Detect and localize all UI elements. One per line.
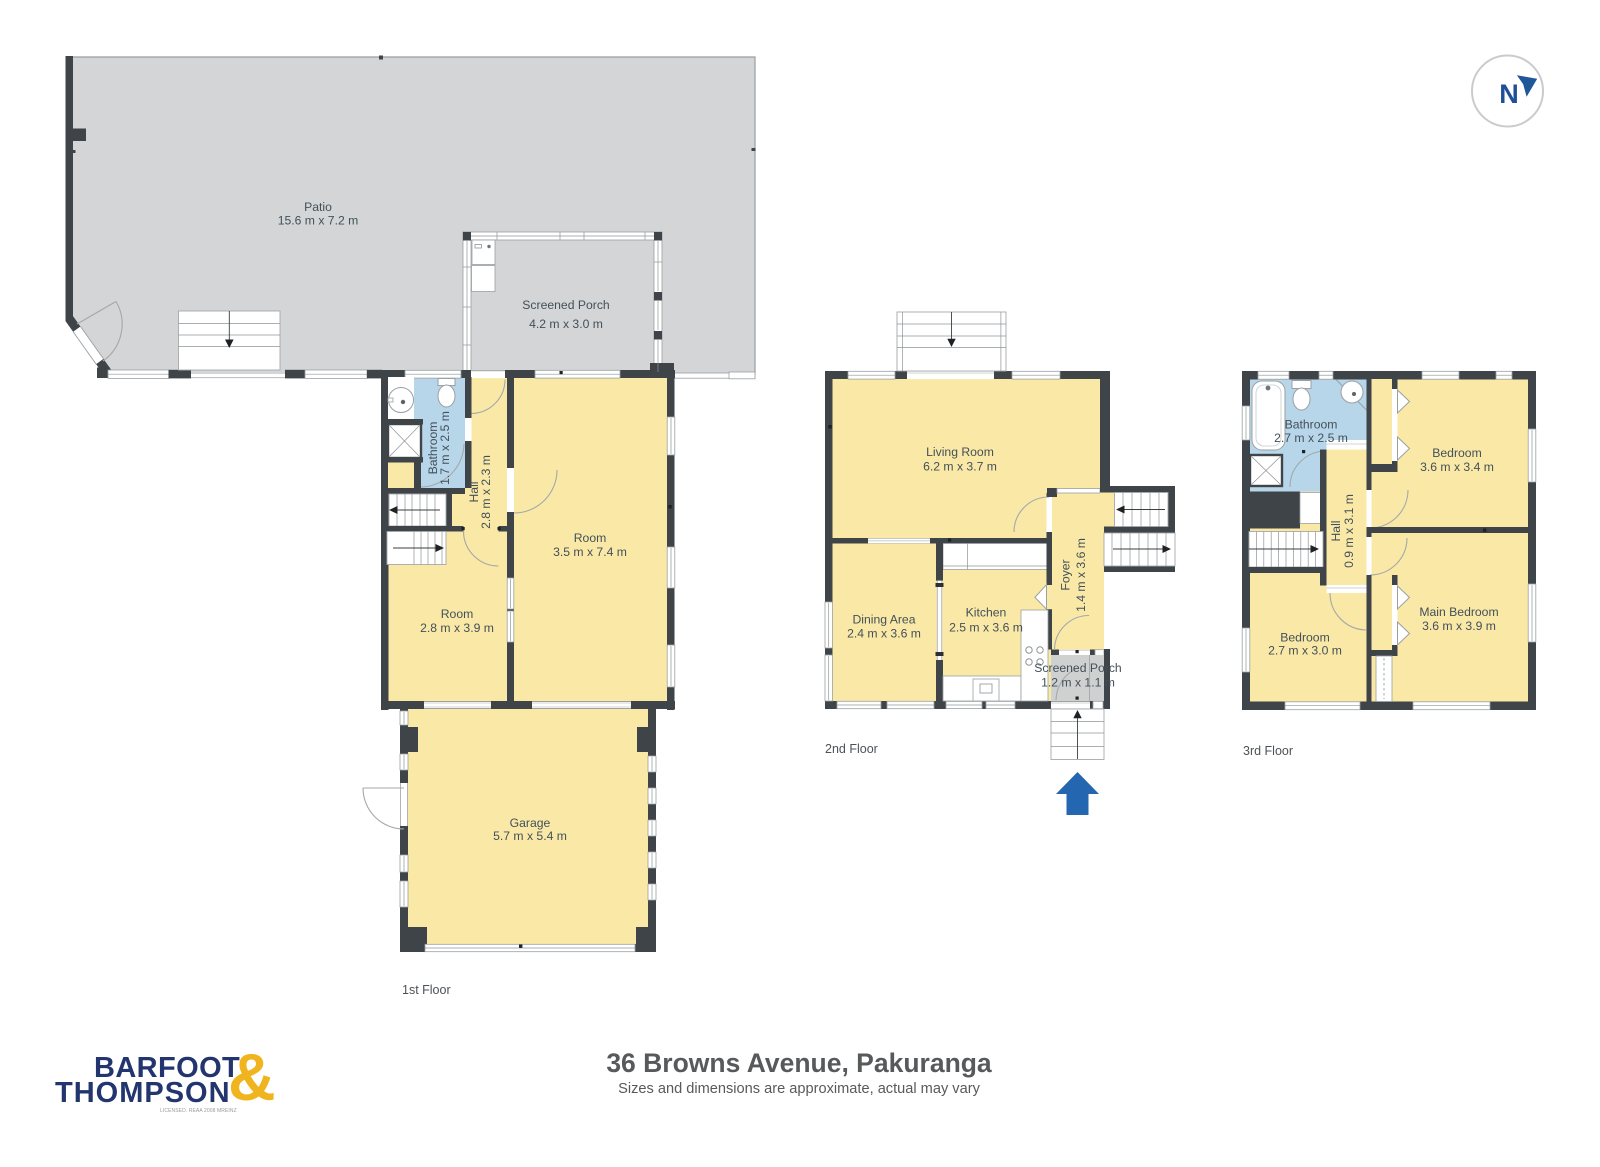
svg-text:Garage: Garage <box>510 816 551 830</box>
svg-text:6.2 m x 3.7 m: 6.2 m x 3.7 m <box>923 460 997 474</box>
svg-text:2.7 m x 3.0 m: 2.7 m x 3.0 m <box>1268 644 1342 658</box>
svg-text:3.6 m x 3.4 m: 3.6 m x 3.4 m <box>1420 460 1494 474</box>
svg-text:Screened Porch: Screened Porch <box>522 298 609 312</box>
svg-text:Dining Area: Dining Area <box>852 613 915 627</box>
svg-text:Kitchen: Kitchen <box>966 606 1007 620</box>
svg-text:1st Floor: 1st Floor <box>402 983 451 997</box>
svg-text:15.6 m x 7.2 m: 15.6 m x 7.2 m <box>278 214 359 228</box>
svg-text:Hall: Hall <box>1329 521 1343 542</box>
svg-text:Room: Room <box>574 531 607 545</box>
svg-text:1.4 m x 3.6 m: 1.4 m x 3.6 m <box>1074 538 1088 612</box>
svg-text:N: N <box>1499 79 1519 109</box>
svg-text:3rd Floor: 3rd Floor <box>1243 744 1293 758</box>
svg-text:&: & <box>228 1040 276 1114</box>
svg-text:2.4 m x 3.6 m: 2.4 m x 3.6 m <box>847 627 921 641</box>
svg-text:Sizes and dimensions are appro: Sizes and dimensions are approximate, ac… <box>618 1081 980 1097</box>
svg-text:0.9 m x 3.1 m: 0.9 m x 3.1 m <box>1342 494 1356 568</box>
svg-text:3.5 m x 7.4 m: 3.5 m x 7.4 m <box>553 545 627 559</box>
svg-text:2.7 m x 2.5 m: 2.7 m x 2.5 m <box>1274 431 1348 445</box>
svg-text:1.2 m x 1.1 m: 1.2 m x 1.1 m <box>1041 676 1115 690</box>
svg-text:4.2 m x 3.0 m: 4.2 m x 3.0 m <box>529 317 603 331</box>
svg-text:3.6 m x 3.9 m: 3.6 m x 3.9 m <box>1422 619 1496 633</box>
svg-text:2.8 m x 2.3 m: 2.8 m x 2.3 m <box>479 455 493 529</box>
svg-text:Bathroom: Bathroom <box>1285 418 1338 432</box>
svg-text:Bedroom: Bedroom <box>1280 631 1329 645</box>
svg-text:Patio: Patio <box>304 200 332 214</box>
svg-text:Room: Room <box>441 607 474 621</box>
svg-text:36 Browns Avenue, Pakuranga: 36 Browns Avenue, Pakuranga <box>606 1048 992 1078</box>
svg-text:2nd Floor: 2nd Floor <box>825 742 878 756</box>
svg-text:Living Room: Living Room <box>926 445 994 459</box>
svg-text:Bedroom: Bedroom <box>1432 446 1481 460</box>
svg-text:2.5 m x 3.6 m: 2.5 m x 3.6 m <box>949 621 1023 635</box>
svg-text:5.7 m x 5.4 m: 5.7 m x 5.4 m <box>493 829 567 843</box>
svg-text:2.8 m x 3.9 m: 2.8 m x 3.9 m <box>420 621 494 635</box>
svg-text:LICENSED. REAA 2008 MREINZ: LICENSED. REAA 2008 MREINZ <box>160 1108 237 1114</box>
svg-text:Main Bedroom: Main Bedroom <box>1419 605 1498 619</box>
svg-text:1.7 m x 2.5 m: 1.7 m x 2.5 m <box>438 411 452 485</box>
svg-text:Foyer: Foyer <box>1059 559 1073 590</box>
svg-text:Screened Porch: Screened Porch <box>1034 661 1121 675</box>
svg-text:THOMPSON: THOMPSON <box>55 1077 231 1109</box>
